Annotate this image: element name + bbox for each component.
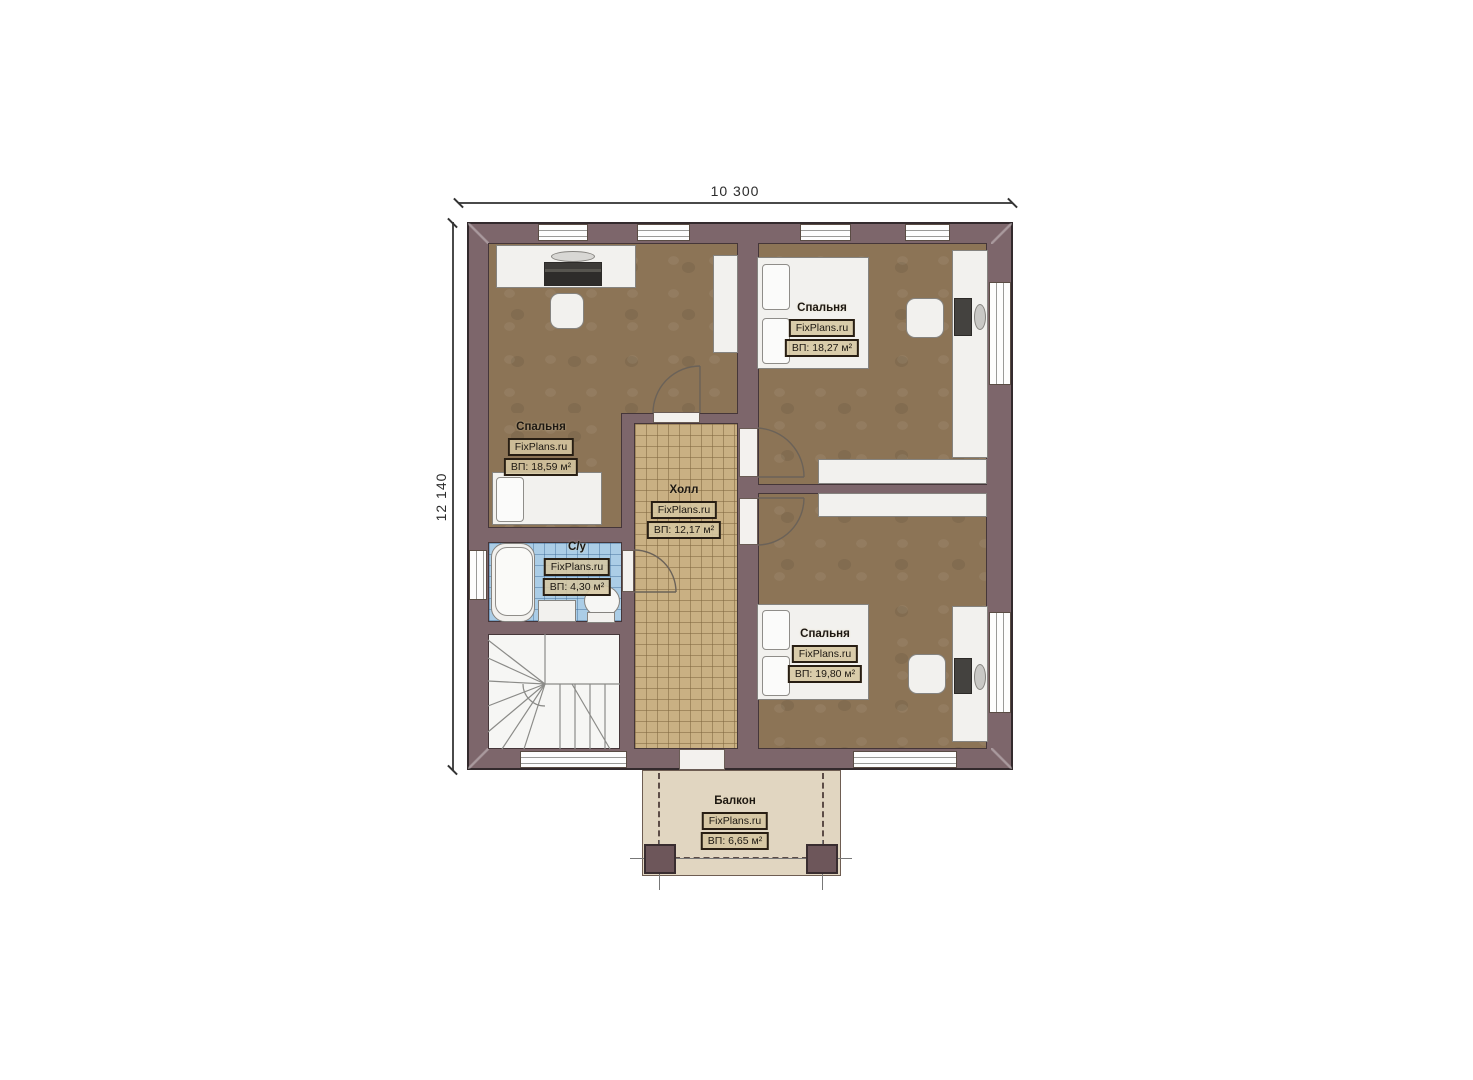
room-label-bedroom-top-right: Спальня FixPlans.ru ВП: 18,27 м² [785,302,859,357]
room-label-bedroom-bottom-right: Спальня FixPlans.ru ВП: 19,80 м² [788,628,862,683]
room-name: С/у [568,541,586,554]
room-name: Балкон [714,795,756,808]
computer [954,298,972,336]
room-name: Спальня [800,628,850,641]
desk [952,250,988,458]
staircase-treads [488,634,620,749]
room-area-label: ВП: 4,30 м² [543,578,611,596]
door-swing-arcs [0,0,1473,1080]
balcony-railing-left [658,773,660,846]
room-area-label: ВП: 12,17 м² [647,521,721,539]
bathtub-inner [495,547,533,616]
bed-pillow [496,477,524,522]
floor-plan-page: { "plan": { "type": "second-floor-plan",… [0,0,1473,1080]
brand-label: FixPlans.ru [702,812,769,830]
room-label-bathroom: С/у FixPlans.ru ВП: 4,30 м² [543,541,611,596]
room-area-label: ВП: 18,59 м² [504,458,578,476]
room-label-bedroom-left: Спальня FixPlans.ru ВП: 18,59 м² [504,421,578,476]
printer-top [551,251,595,262]
bed-pillow [762,656,790,696]
brand-label: FixPlans.ru [544,558,611,576]
brand-label: FixPlans.ru [508,438,575,456]
room-area-label: ВП: 6,65 м² [701,832,769,850]
chair [906,298,944,338]
room-label-hall: Холл FixPlans.ru ВП: 12,17 м² [647,484,721,539]
brand-label: FixPlans.ru [792,645,859,663]
balcony-post-right [806,844,838,874]
toilet-tank [587,612,615,623]
computer-mouse [974,664,986,690]
printer [544,262,602,286]
computer-mouse [974,304,986,330]
room-area-label: ВП: 18,27 м² [785,339,859,357]
room-name: Холл [670,484,699,497]
sink [538,600,576,622]
computer [954,658,972,694]
balcony-railing-right [822,773,824,846]
wardrobe [818,493,987,517]
room-label-balcony: Балкон FixPlans.ru ВП: 6,65 м² [701,795,769,850]
room-name: Спальня [516,421,566,434]
wardrobe [818,459,987,484]
chair [908,654,946,694]
room-area-label: ВП: 19,80 м² [788,665,862,683]
balcony-post-left [644,844,676,874]
room-name: Спальня [797,302,847,315]
brand-label: FixPlans.ru [651,501,718,519]
bed-pillow [762,610,790,650]
wardrobe [713,255,738,353]
brand-label: FixPlans.ru [789,319,856,337]
chair [550,293,584,329]
